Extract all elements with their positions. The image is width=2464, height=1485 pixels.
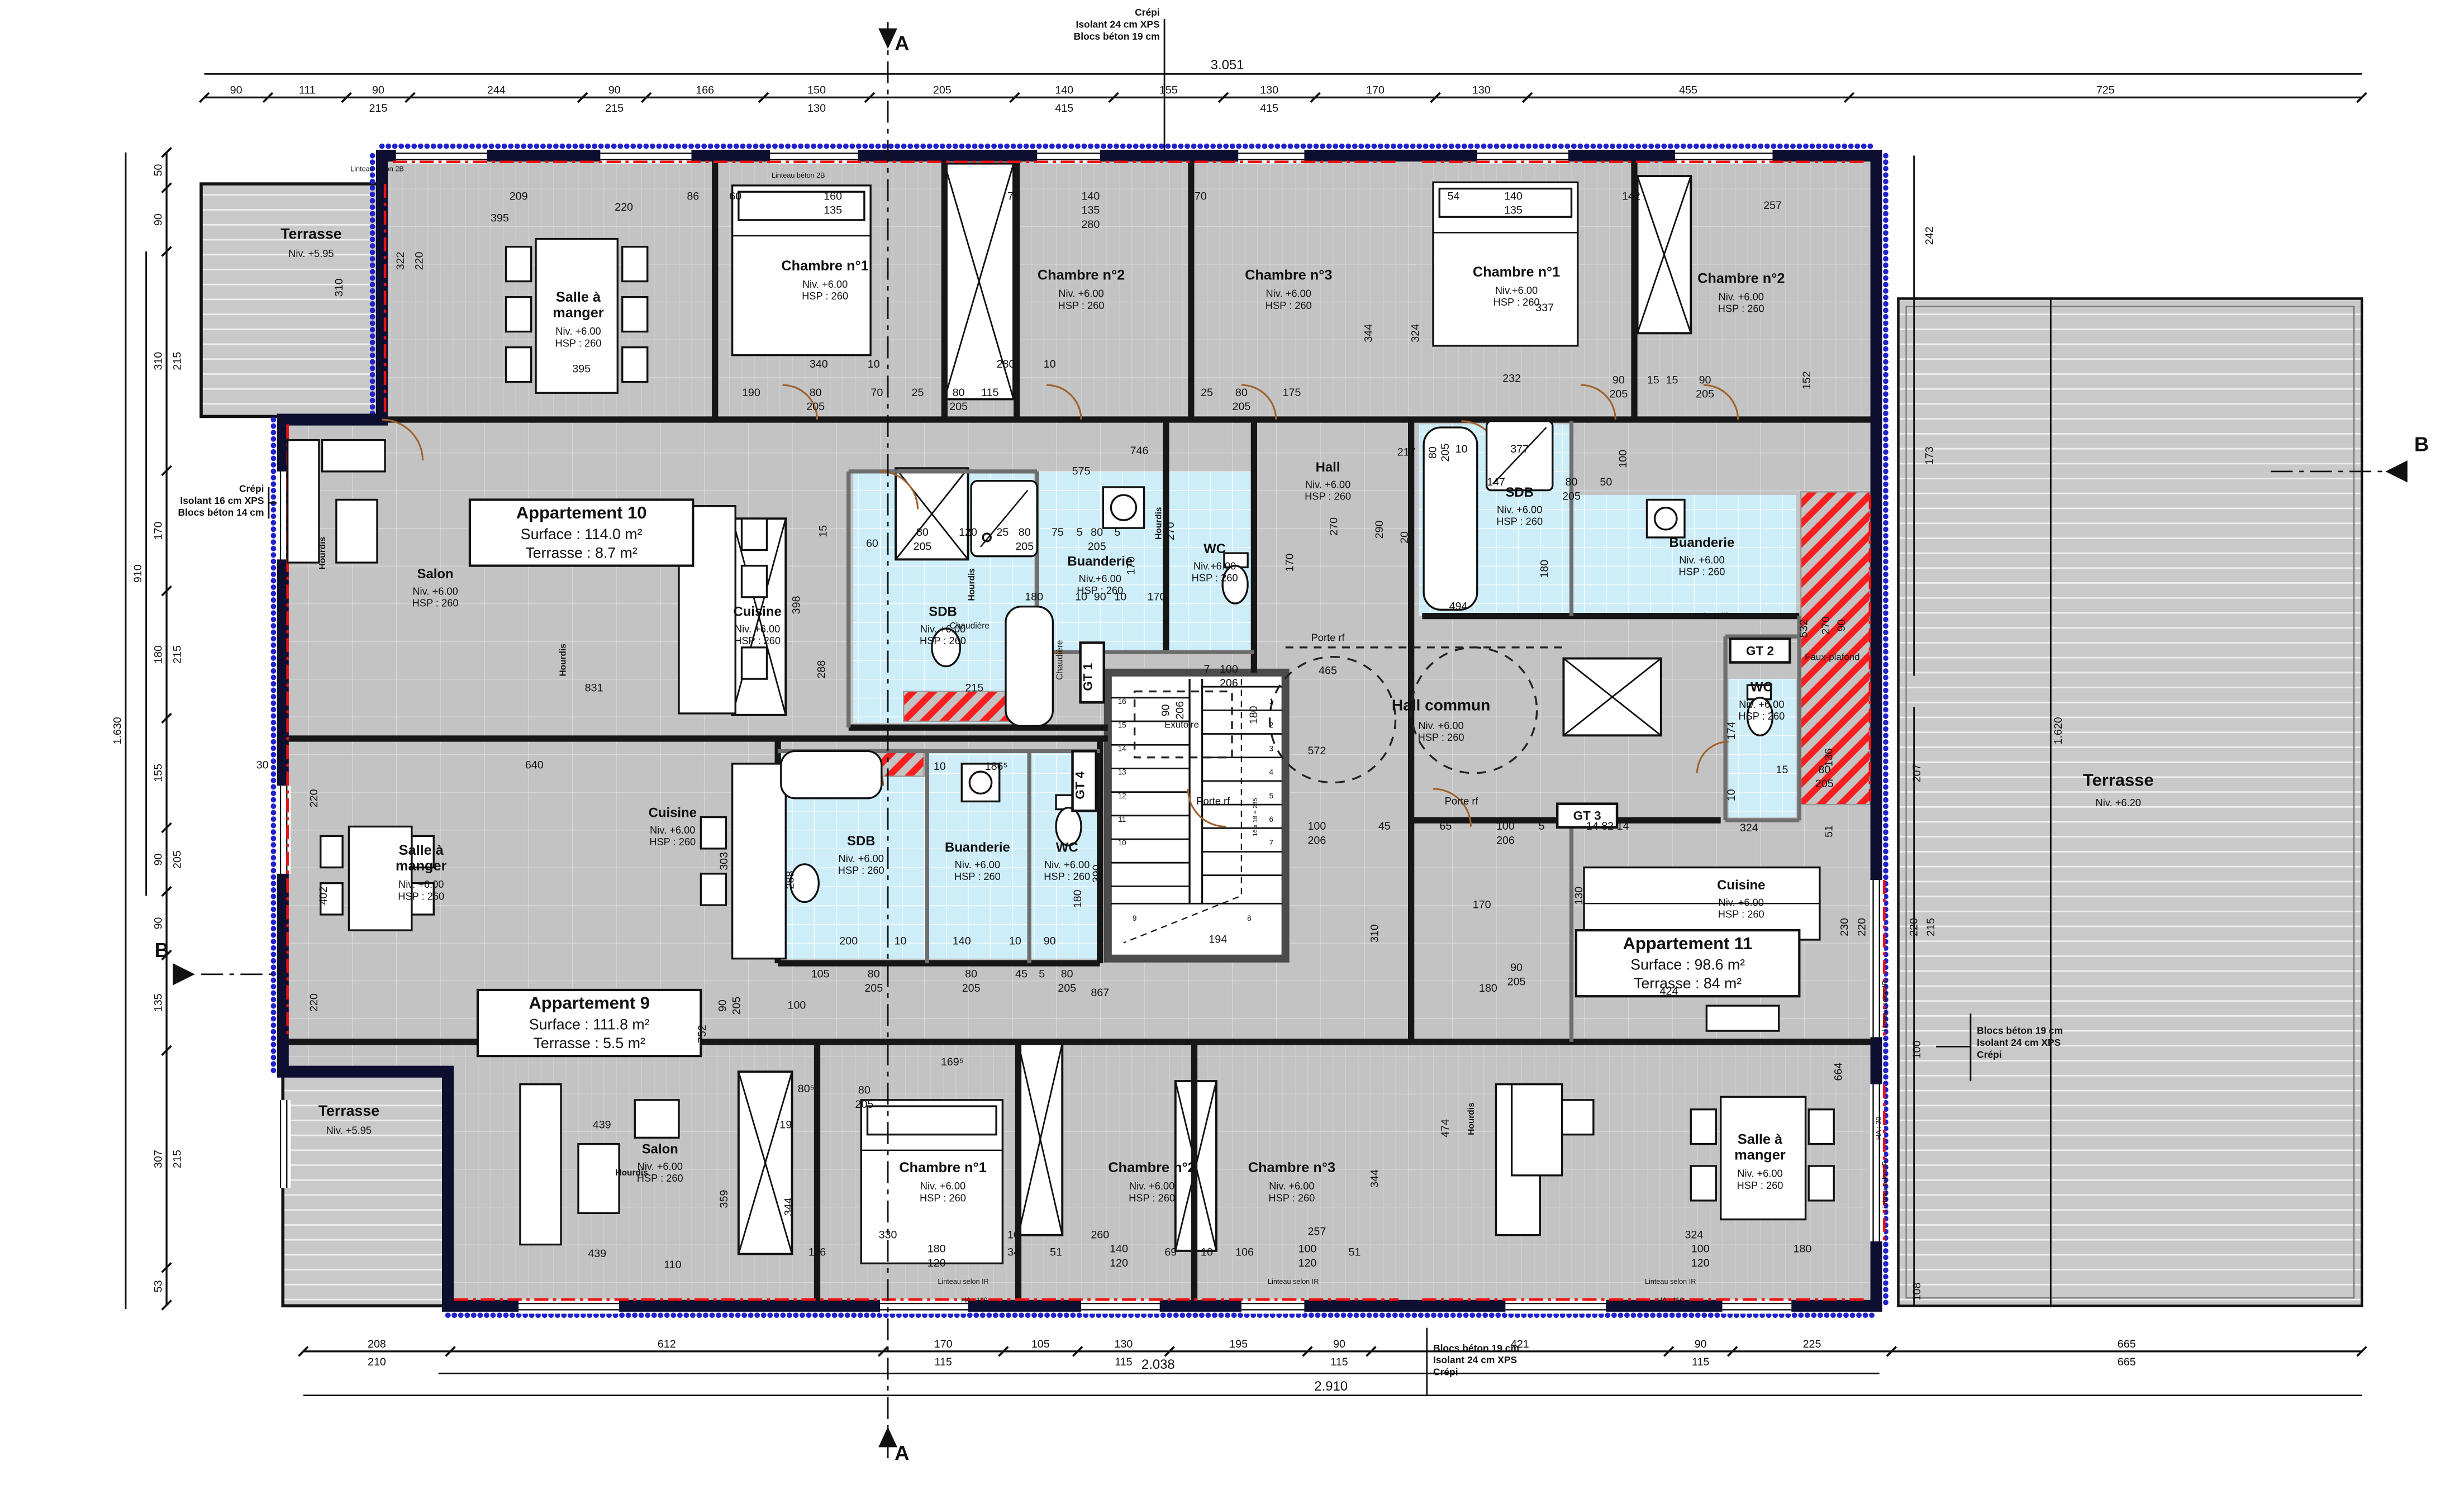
dim-label: 140 (953, 935, 971, 947)
dim-label: 140 (1055, 84, 1073, 96)
dim-label: 100 (1307, 820, 1326, 832)
dim-label: 175 (1282, 387, 1301, 399)
dim-label: 50 (1600, 476, 1612, 488)
room-level: Niv. +6.00 (1305, 478, 1350, 490)
dim-label: 205 (1815, 778, 1834, 790)
room-ceiling-height: HSP : 260 (1266, 299, 1312, 311)
dim-label: 205 (855, 1098, 873, 1111)
dim-label: 170 (1148, 591, 1166, 603)
room-ceiling-height: HSP : 260 (1738, 710, 1785, 722)
dim-label: 70 (1195, 190, 1207, 202)
room-level: Niv. +6.00 (920, 1180, 965, 1192)
dim-label: 205 (1439, 444, 1452, 462)
dim-label: 80 (1818, 764, 1830, 776)
dim-label: 106 (1235, 1246, 1254, 1258)
stair-step-number: 15 (1118, 721, 1126, 729)
room-ceiling-height: HSP : 260 (920, 635, 966, 646)
dim-label: 100 (1617, 450, 1629, 468)
room-level: Niv.+6.00 (1495, 284, 1538, 296)
dim-label: 116 (808, 1246, 826, 1258)
dim-label: 1.620 (2052, 717, 2065, 744)
note-line: Blocs béton 19 cm (1074, 31, 1160, 42)
dim-label: 10 (1044, 358, 1056, 370)
dim-label: 205 (933, 84, 952, 96)
annotation-label: Hourdis (967, 568, 977, 601)
dim-label: 337 (1535, 302, 1554, 314)
dim-label: 174 (1725, 721, 1738, 740)
dim-label: 280 (1081, 218, 1100, 231)
dim-label: 115 (1115, 1356, 1132, 1368)
dim-label: 612 (658, 1338, 676, 1350)
section-marker-letter: B (2414, 432, 2429, 455)
dim-label: 170 (1284, 554, 1296, 572)
dim-label: 10 (895, 935, 907, 947)
site-background (126, 19, 2408, 1465)
dim-label: 170 (1473, 899, 1491, 911)
dim-label: 270 (1164, 522, 1177, 540)
dim-label: 10 (1455, 443, 1468, 455)
dim-label: 90 (372, 84, 384, 96)
annotation-label: HA : 110 (1657, 1297, 1684, 1305)
dim-label: 210 (368, 1356, 386, 1368)
dim-label: 130 (1573, 887, 1585, 905)
room-ceiling-height: HSP : 260 (1678, 565, 1725, 577)
apartment-name: Appartement 9 (529, 993, 650, 1013)
annotation-label: Porte rf (1196, 795, 1230, 807)
dim-label: 10 (868, 358, 880, 370)
dim-label: 494 (1449, 600, 1468, 612)
annotation-label: 16 x 18 = 285 (1252, 798, 1259, 836)
dim-label: 270 (1820, 616, 1832, 635)
dim-label: 206 (1307, 834, 1326, 846)
dim-label: 25 (1201, 387, 1213, 399)
dim-label: 532 (1797, 620, 1810, 638)
apartment-terrace-area: Terrasse : 84 m² (1634, 975, 1742, 992)
room-name: SDB (847, 834, 875, 849)
dim-label: 280 (997, 358, 1015, 370)
dim-label: 90 (153, 854, 165, 866)
room-name: Terrasse (318, 1102, 379, 1119)
gt-label: GT 4 (1073, 771, 1087, 799)
dim-label: 7 (1204, 663, 1210, 675)
dim-label: 395 (491, 212, 509, 225)
dim-label: 105 (811, 968, 830, 980)
dim-label: 209 (510, 190, 528, 202)
dim-label: 169⁵ (941, 1056, 964, 1068)
stair-step-number: 12 (1118, 792, 1126, 800)
dim-label: 160 (824, 190, 842, 202)
dim-label: 100 (788, 999, 806, 1012)
dim-label: 135 (1081, 204, 1100, 217)
room-level: Niv. +6.00 (1679, 554, 1724, 565)
dim-label: 5 (1077, 526, 1083, 539)
dim-label: 324 (1410, 324, 1422, 342)
dim-label: 215 (171, 1150, 183, 1168)
elevator (1563, 659, 1661, 736)
dim-label: 173 (1923, 446, 1935, 465)
dim-label: 208 (368, 1338, 386, 1350)
room-name: SDB (1505, 485, 1533, 500)
dim-label: 665 (2118, 1356, 2136, 1368)
dim-label: 80 (1091, 526, 1103, 539)
dim-label: 65 (1440, 820, 1452, 832)
room-ceiling-height: HSP : 260 (920, 1192, 966, 1203)
dim-label: 220 (615, 201, 633, 213)
room-level: Niv. +5.95 (326, 1124, 372, 1136)
dim-label: 831 (585, 682, 603, 694)
dim-label: 5 (1539, 820, 1545, 832)
room-ceiling-height: HSP : 260 (555, 337, 602, 349)
dim-label: 310 (153, 352, 165, 370)
dim-label: 215 (171, 352, 183, 370)
note-line: Isolant 16 cm XPS (180, 495, 264, 506)
dim-label: 180 (1248, 706, 1260, 724)
dim-label: 80 (1019, 526, 1031, 539)
note-line: Isolant 24 cm XPS (1977, 1037, 2061, 1048)
dim-label: 80 (810, 387, 822, 399)
dim-label: 170 (1366, 84, 1385, 96)
dim-label: 51 (1050, 1246, 1062, 1258)
stair-step-number: 6 (1269, 815, 1274, 824)
kitchen-counter-icon (1584, 868, 1820, 940)
dim-label: 220 (308, 993, 320, 1012)
dim-label: 746 (1130, 445, 1149, 457)
annotation-label: Exutoire (1164, 719, 1199, 730)
dim-label: 142 (1622, 190, 1640, 202)
dim-label: 474 (1439, 1119, 1452, 1137)
dim-label: 51 (1823, 825, 1835, 837)
dim-label: 260 (1091, 1229, 1109, 1241)
dim-label: 10 (1075, 591, 1087, 603)
dim-label: 344 (1362, 324, 1374, 342)
room-name: Chambre n°1 (1473, 264, 1560, 280)
room-name: Salle à (1738, 1132, 1783, 1148)
dim-label: 270 (1328, 517, 1340, 536)
room-level: Niv. +6.00 (1739, 698, 1784, 710)
dim-label: 90 (716, 999, 729, 1012)
room-label: CuisineNiv. +6.00HSP : 260 (733, 605, 781, 647)
dim-label: 54 (1448, 190, 1460, 202)
dim-label: 665 (2118, 1338, 2136, 1350)
dim-label: 220 (1856, 918, 1868, 936)
room-name: Hall (1316, 460, 1340, 475)
room-name: Chambre n°2 (1697, 270, 1785, 286)
dim-label: 205 (1562, 490, 1581, 502)
dim-label: 25 (912, 387, 924, 399)
dim-total: 2.038 (1141, 1357, 1175, 1372)
dim-label: 402 (317, 887, 330, 905)
floor-plan-drawing: TerrasseNiv. +5.95Salle àmangerNiv. +6.0… (0, 0, 2464, 1485)
dim-label: 10 (1007, 1229, 1020, 1241)
dim-label: 344 (783, 1198, 795, 1216)
room-name: manger (396, 858, 447, 874)
gt-box: GT 4 (1073, 751, 1096, 811)
dim-label: 90 (230, 84, 242, 96)
room-ceiling-height: HSP : 260 (1496, 515, 1543, 527)
note-line: Crépi (1135, 7, 1160, 18)
dim-label: 220 (308, 789, 320, 807)
room-level: Niv. +6.00 (1497, 503, 1542, 515)
dim-label: 200 (839, 935, 858, 947)
dim-label: 310 (333, 278, 345, 297)
room-label: Salle àmangerNiv. +6.00HSP : 260 (1734, 1132, 1786, 1191)
section-marker-letter: A (895, 32, 909, 55)
room-ceiling-height: HSP : 260 (1718, 302, 1764, 314)
apartment-info-box: Appartement 11Surface : 98.6 m²Terrasse … (1576, 930, 1799, 996)
dim-label: 398 (791, 596, 803, 614)
room-level: Niv. +6.00 (839, 853, 884, 864)
room-name: Chambre n°1 (781, 258, 868, 274)
dim-label: 135 (153, 993, 165, 1012)
dim-label: 51 (1348, 1246, 1361, 1258)
room-name: Salle à (399, 843, 444, 858)
dim-label: 390 (1091, 864, 1103, 883)
dim-label: 80⁵ (798, 1083, 815, 1095)
room-label: CuisineNiv. +6.00HSP : 260 (649, 806, 697, 848)
dim-label: 130 (1260, 84, 1278, 96)
note-line: Crépi (1977, 1049, 2002, 1060)
room-ceiling-height: HSP : 260 (412, 597, 459, 609)
dim-label: 230 (1839, 918, 1851, 936)
room-ceiling-height: HSP : 260 (1737, 1179, 1783, 1191)
dim-label: 180 (1479, 982, 1497, 994)
dim-label: 205 (1088, 540, 1106, 553)
room-level: Niv. +6.00 (555, 325, 601, 337)
dim-label: 140 (1110, 1243, 1128, 1255)
dim-label: 180 (1794, 1243, 1812, 1255)
dim-label: 205 (806, 401, 825, 413)
apartment-name: Appartement 10 (516, 503, 647, 522)
dim-label: 244 (487, 84, 506, 96)
room-ceiling-height: HSP : 260 (398, 890, 444, 902)
dim-label: 90 (1510, 962, 1523, 974)
dim-label: 80 (1566, 476, 1578, 488)
room-ceiling-height: HSP : 260 (1493, 296, 1540, 308)
room-ceiling-height: HSP : 260 (1305, 490, 1351, 502)
dim-label: 120 (1691, 1257, 1710, 1269)
dim-label: 10 (1725, 789, 1738, 801)
apartment-terrace-area: Terrasse : 5.5 m² (534, 1035, 645, 1051)
dim-label: 80 (953, 387, 965, 399)
dim-label: 90 (1695, 1338, 1707, 1350)
note-line: Isolant 24 cm XPS (1076, 19, 1160, 30)
room-name: Buanderie (945, 840, 1010, 855)
dim-label: 80 (858, 1084, 871, 1097)
room-name: Terrasse (280, 226, 341, 242)
dim-label: 205 (1507, 976, 1526, 988)
room-ceiling-height: HSP : 260 (1192, 572, 1238, 584)
room-level: Niv.+6.00 (1193, 560, 1236, 572)
room-ceiling-height: HSP : 260 (838, 864, 884, 876)
stair-step-number: 11 (1118, 815, 1126, 824)
note-line: Blocs béton 19 cm (1977, 1025, 2063, 1036)
dim-label: 322 (394, 252, 407, 270)
room-name: Salon (417, 567, 454, 582)
dim-label: 90 (153, 917, 165, 929)
dim-label: 215 (605, 102, 624, 115)
sofa-icon (288, 440, 385, 563)
dim-label: 150 (807, 84, 826, 96)
gt-label: GT 1 (1081, 663, 1095, 691)
dim-label: 395 (572, 363, 591, 375)
room-name: Chambre n°1 (899, 1160, 986, 1175)
annotation-label: Chaudière (1697, 612, 1737, 621)
dim-label: 100 (1691, 1243, 1710, 1255)
dim-label: 324 (1685, 1229, 1703, 1241)
dim-label: 166 (696, 84, 714, 96)
annotation-label: HA : 110 (961, 1297, 988, 1305)
room-name: Chambre n°3 (1248, 1160, 1335, 1175)
dim-label: 53 (153, 1280, 165, 1292)
gt-label: GT 2 (1746, 644, 1774, 658)
gt-box: GT 2 (1730, 639, 1790, 662)
dim-label: 34 (1007, 1246, 1020, 1258)
room-name: Salon (642, 1141, 678, 1156)
note-line: Blocs béton 19 cm (1433, 1343, 1519, 1354)
dim-label: 90 (1835, 619, 1848, 631)
dim-label: 170 (934, 1338, 953, 1350)
room-level: Niv. +6.00 (1418, 720, 1463, 731)
room-label: CuisineNiv. +6.00HSP : 260 (1717, 878, 1765, 920)
room-ceiling-height: HSP : 260 (1129, 1192, 1175, 1203)
dim-label: 120 (927, 1257, 946, 1269)
dim-label: 180 (927, 1243, 946, 1255)
room-level: Niv. +6.00 (1737, 1168, 1782, 1179)
stair-step-number: 10 (1118, 839, 1126, 847)
annotation-label: Linteau selon IR (938, 1278, 988, 1286)
dim-label: 15 (817, 525, 829, 537)
annotation-label: Linteau selon IR (1645, 1278, 1696, 1286)
dim-label: 80 (965, 968, 977, 980)
dim-label: 257 (1307, 1226, 1326, 1238)
room-name: Cuisine (1717, 878, 1765, 893)
room-name: WC (1751, 680, 1773, 695)
room-name: Chambre n°3 (1245, 268, 1332, 283)
dim-label: 186⁵ (985, 760, 1008, 773)
dim-label: 307 (153, 1150, 165, 1168)
dim-label: 439 (593, 1118, 611, 1131)
dim-label: 439 (588, 1248, 606, 1260)
dim-label: 105 (1031, 1338, 1050, 1350)
annotation-label: HA : 20 (1875, 1117, 1883, 1140)
room-level: Niv. +6.00 (1044, 859, 1090, 870)
dim-label: 205 (1696, 388, 1714, 401)
annotation-label: HA : 150 (1875, 673, 1883, 701)
dim-label: 108 (1911, 1283, 1923, 1301)
dim-label: 190 (742, 387, 760, 399)
dim-label: 288 (816, 660, 828, 679)
dim-label: 910 (132, 564, 144, 583)
washer-icon (1103, 487, 1144, 528)
dim-label: 60 (729, 190, 741, 202)
dim-label: 75 (1052, 526, 1064, 539)
room-name: WC (1056, 840, 1078, 855)
apartment-info-box: Appartement 9Surface : 111.8 m²Terrasse … (478, 990, 701, 1056)
room-ceiling-height: HSP : 260 (1718, 908, 1764, 920)
dim-label: 90 (1333, 1338, 1345, 1350)
room-ceiling-height: HSP : 260 (1418, 731, 1464, 743)
dim-label: 155 (1159, 84, 1178, 96)
dim-label: 80 (916, 526, 929, 539)
dim-label: 324 (1740, 822, 1758, 834)
dim-label: 206 (1496, 834, 1515, 846)
room-label: SalonNiv. +6.00HSP : 260 (412, 567, 459, 609)
room-name: manger (1734, 1148, 1786, 1163)
dim-label: 10 (934, 760, 946, 773)
annotation-label: Hourdis (1154, 507, 1163, 539)
room-level: Niv. +6.00 (1269, 1180, 1314, 1192)
dim-label: 194 (1209, 934, 1227, 946)
dim-label: 180 (153, 645, 165, 664)
dim-label: 50 (153, 164, 165, 177)
construction-note: Blocs béton 19 cmIsolant 24 cm XPSCrépi (1433, 1343, 1519, 1378)
room-level: Niv. +6.00 (955, 859, 1000, 870)
dim-label: 206 (1220, 677, 1238, 689)
dim-label: 205 (1609, 388, 1628, 401)
dim-label: 80 (1427, 446, 1439, 459)
section-b-right-triangle-icon (2385, 460, 2407, 482)
room-level: Niv. +6.00 (802, 278, 848, 290)
room-label: Salle àmangerNiv. +6.00HSP : 260 (553, 289, 604, 349)
dim-label: 359 (718, 1190, 730, 1208)
stair-step-number: 8 (1247, 914, 1252, 922)
dim-label: 10 (1009, 935, 1021, 947)
dim-label: 310 (1369, 924, 1381, 943)
room-label: Salle àmangerNiv. +6.00HSP : 260 (396, 843, 447, 902)
note-line: Blocs béton 14 cm (178, 507, 264, 518)
room-name: Terrasse (2083, 770, 2154, 789)
room-ceiling-height: HSP : 260 (734, 635, 781, 646)
room-level: Niv. +5.95 (288, 247, 334, 259)
apartment-terrace-area: Terrasse : 8.7 m² (525, 545, 637, 561)
apartment-info-box: Appartement 10Surface : 114.0 m²Terrasse… (470, 499, 693, 565)
dim-label: 170 (153, 522, 165, 540)
dim-label: 640 (525, 759, 544, 771)
room-ceiling-height: HSP : 260 (1268, 1192, 1315, 1203)
room-name: WC (1204, 541, 1226, 556)
room-name: manger (553, 305, 604, 321)
dim-label: 215 (965, 682, 983, 694)
dim-label: 80 (1235, 387, 1248, 399)
dim-label: 195 (1229, 1338, 1248, 1350)
dim-label: 288 (784, 871, 796, 889)
annotation-label: Linteau selon IR (1881, 1161, 1889, 1212)
dim-label: 130 (1115, 1338, 1133, 1350)
dim-label: 215 (1925, 918, 1937, 936)
dim-label: 30 (256, 759, 269, 771)
room-ceiling-height: HSP : 260 (649, 836, 696, 848)
dim-total: 2.910 (1314, 1379, 1348, 1394)
dim-label: 180 (1025, 591, 1043, 603)
dim-label: 111 (299, 84, 316, 96)
dim-label: 575 (1072, 465, 1091, 477)
dim-label: 69 (1164, 1246, 1177, 1258)
bathtub-icon (1006, 607, 1053, 726)
dim-label: 90 (1699, 374, 1711, 386)
room-name: Cuisine (733, 605, 781, 620)
room-level: Niv. +6.00 (1266, 288, 1311, 299)
dim-label: 140 (1081, 190, 1100, 202)
dim-label: 725 (2096, 84, 2115, 96)
section-b-left-triangle-icon (173, 963, 194, 985)
stair-step-number: 13 (1118, 768, 1126, 777)
annotation-label: Hourdis (559, 644, 568, 676)
dim-label: 205 (1232, 401, 1250, 413)
dim-label: 215 (369, 102, 388, 115)
washer-icon (1647, 499, 1685, 537)
dim-label: 152 (1801, 371, 1813, 389)
annotation-label: Chaudière (950, 621, 990, 631)
